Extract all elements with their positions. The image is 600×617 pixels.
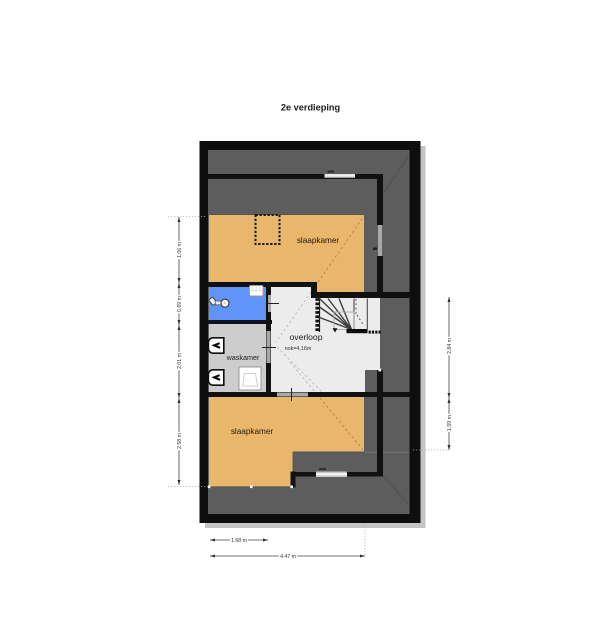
- svg-text:nok=4,16m: nok=4,16m: [285, 346, 312, 352]
- svg-text:overloop: overloop: [290, 332, 323, 342]
- svg-text:slaapkamer: slaapkamer: [297, 236, 340, 245]
- svg-text:2.01 m: 2.01 m: [177, 353, 183, 369]
- svg-text:2.84 m: 2.84 m: [447, 338, 453, 354]
- svg-text:1.59 m: 1.59 m: [447, 415, 453, 431]
- svg-text:1.68 m: 1.68 m: [231, 538, 247, 544]
- svg-text:4.47 m: 4.47 m: [280, 554, 296, 560]
- svg-text:1.06 m: 1.06 m: [177, 242, 183, 258]
- svg-text:0.69 m: 0.69 m: [177, 296, 183, 312]
- svg-text:slaapkamer: slaapkamer: [231, 427, 274, 436]
- svg-text:2e verdieping: 2e verdieping: [281, 103, 340, 113]
- svg-text:2.58 m: 2.58 m: [177, 433, 183, 449]
- svg-text:waskamer: waskamer: [226, 353, 260, 362]
